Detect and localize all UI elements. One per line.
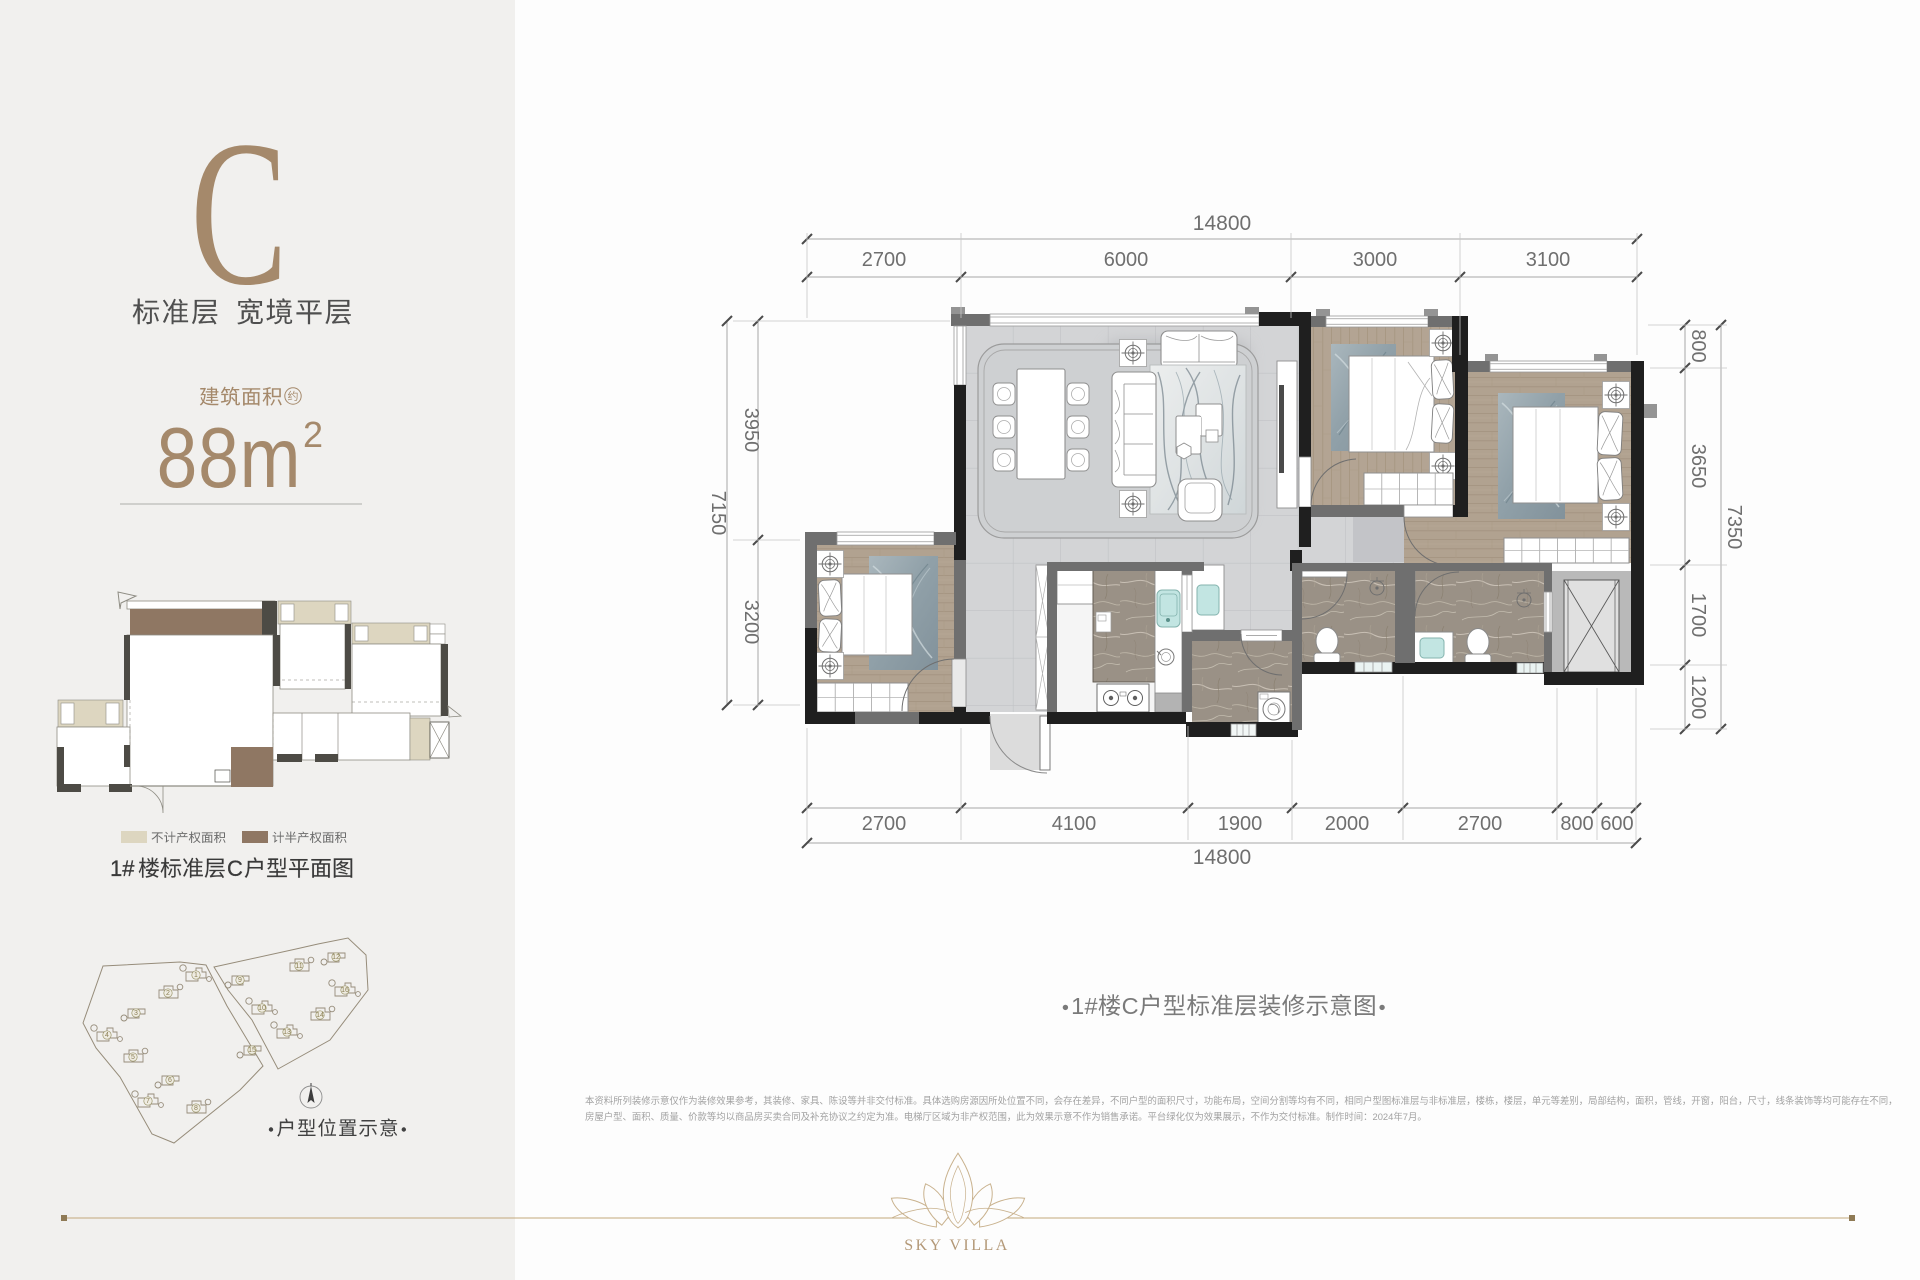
svg-text:16: 16 — [341, 987, 349, 994]
svg-text:6: 6 — [168, 1077, 172, 1084]
svg-text:14800: 14800 — [1193, 846, 1251, 869]
svg-text:7350: 7350 — [1723, 505, 1745, 550]
svg-text:2: 2 — [303, 414, 323, 455]
svg-text:2000: 2000 — [1325, 813, 1370, 835]
svg-text:#: # — [122, 856, 135, 881]
svg-text:9: 9 — [238, 977, 242, 984]
svg-text:1: 1 — [1071, 993, 1084, 1019]
svg-text:11: 11 — [295, 963, 302, 970]
svg-text:3: 3 — [134, 1010, 138, 1017]
svg-text:SKY VILLA: SKY VILLA — [904, 1237, 1010, 1254]
svg-text:5: 5 — [131, 1054, 135, 1061]
svg-text:6000: 6000 — [1104, 249, 1149, 271]
svg-text:14800: 14800 — [1193, 212, 1251, 235]
svg-text:1700: 1700 — [1687, 593, 1709, 638]
svg-text:7150: 7150 — [707, 491, 729, 536]
svg-text:1: 1 — [194, 972, 198, 979]
svg-text:10: 10 — [258, 1005, 266, 1012]
svg-text:C: C — [190, 98, 287, 329]
svg-text:12: 12 — [332, 954, 340, 961]
svg-text:3000: 3000 — [1353, 249, 1398, 271]
svg-text:2700: 2700 — [862, 249, 907, 271]
svg-text:#: # — [1085, 993, 1098, 1019]
svg-text:2700: 2700 — [862, 813, 907, 835]
svg-text:3200: 3200 — [740, 600, 762, 645]
svg-text:2: 2 — [166, 990, 170, 997]
svg-text:1900: 1900 — [1218, 813, 1263, 835]
svg-text:800: 800 — [1687, 329, 1709, 362]
svg-text:4100: 4100 — [1052, 813, 1097, 835]
svg-text:房屋户型、面积、质量、价款等均以商品房买卖合同及补充协议之约: 房屋户型、面积、质量、价款等均以商品房买卖合同及补充协议之约定为准。电梯厅区域为… — [585, 1111, 1427, 1122]
svg-text:C: C — [1122, 993, 1139, 1019]
svg-text:8: 8 — [194, 1105, 198, 1112]
svg-text:15: 15 — [248, 1047, 256, 1054]
svg-text:14: 14 — [316, 1012, 324, 1019]
svg-text:88m: 88m — [157, 410, 302, 505]
svg-text:7: 7 — [146, 1098, 150, 1105]
svg-text:4: 4 — [105, 1032, 109, 1039]
svg-text:3950: 3950 — [740, 408, 762, 453]
svg-text:3650: 3650 — [1687, 444, 1709, 489]
svg-text:C: C — [227, 856, 243, 881]
svg-text:本资料所列装修示意仅作为装修效果参考，其装修、家具、陈设等并: 本资料所列装修示意仅作为装修效果参考，其装修、家具、陈设等并非交付标准。具体选购… — [585, 1095, 1898, 1106]
svg-text:13: 13 — [283, 1029, 291, 1036]
svg-text:2700: 2700 — [1458, 813, 1503, 835]
svg-text:600: 600 — [1600, 813, 1633, 835]
svg-text:800: 800 — [1560, 813, 1593, 835]
svg-text:3100: 3100 — [1526, 249, 1571, 271]
svg-text:1200: 1200 — [1687, 675, 1709, 720]
svg-text:1: 1 — [110, 856, 122, 881]
